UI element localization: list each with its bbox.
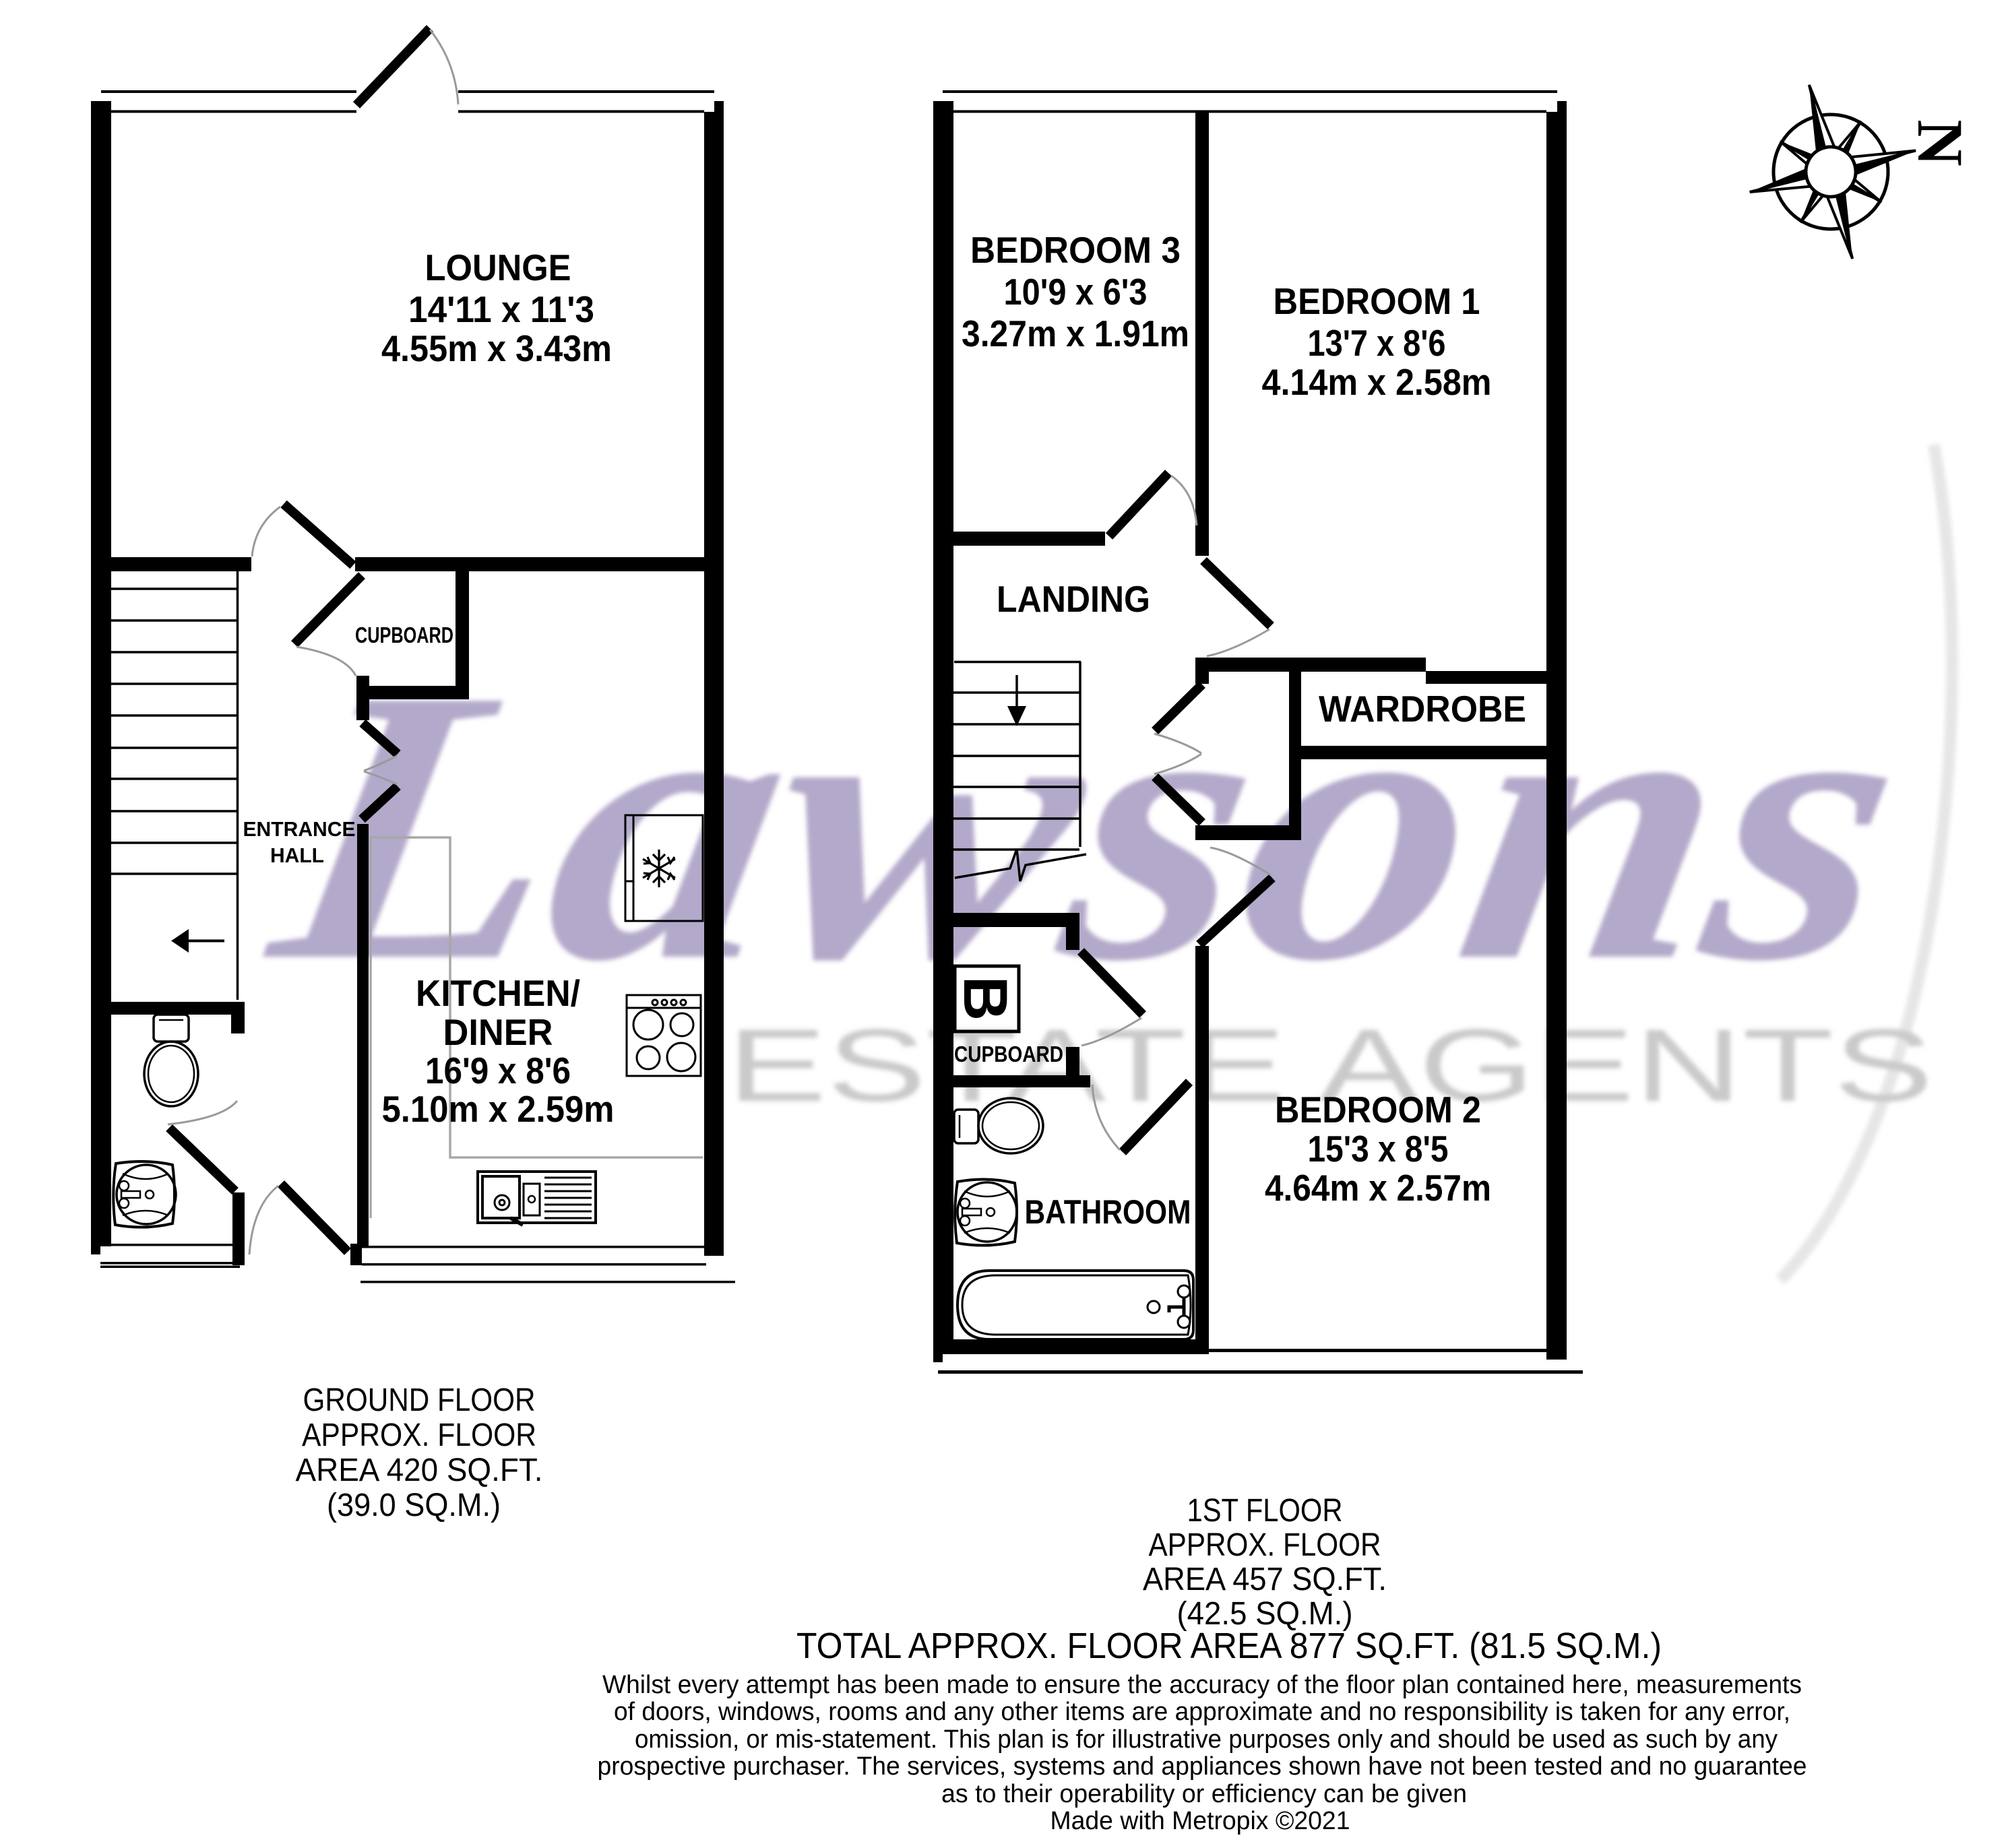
svg-text:4.55m x 3.43m: 4.55m x 3.43m bbox=[381, 327, 612, 369]
svg-text:BEDROOM 2: BEDROOM 2 bbox=[1275, 1089, 1481, 1130]
svg-text:5.10m x 2.59m: 5.10m x 2.59m bbox=[382, 1088, 615, 1130]
svg-text:N: N bbox=[1904, 119, 1976, 166]
svg-text:CUPBOARD: CUPBOARD bbox=[355, 623, 453, 647]
svg-text:omission, or mis-statement. Th: omission, or mis-statement. This plan is… bbox=[635, 1725, 1778, 1754]
svg-text:LOUNGE: LOUNGE bbox=[425, 247, 571, 288]
svg-text:AREA 457 SQ.FT.: AREA 457 SQ.FT. bbox=[1143, 1562, 1387, 1597]
svg-text:3.27m x 1.91m: 3.27m x 1.91m bbox=[962, 313, 1189, 354]
svg-text:(39.0 SQ.M.): (39.0 SQ.M.) bbox=[327, 1488, 501, 1523]
svg-text:Whilst every attempt has been: Whilst every attempt has been made to en… bbox=[602, 1671, 1802, 1699]
svg-text:CUPBOARD: CUPBOARD bbox=[954, 1042, 1063, 1066]
svg-text:10'9 x 6'3: 10'9 x 6'3 bbox=[1004, 271, 1148, 313]
svg-text:ENTRANCE: ENTRANCE bbox=[243, 817, 356, 841]
svg-text:APPROX. FLOOR: APPROX. FLOOR bbox=[1149, 1527, 1381, 1563]
svg-text:4.14m x 2.58m: 4.14m x 2.58m bbox=[1262, 361, 1492, 403]
svg-text:KITCHEN/: KITCHEN/ bbox=[416, 972, 580, 1014]
svg-text:Made with Metropix ©2021: Made with Metropix ©2021 bbox=[1050, 1807, 1350, 1835]
svg-text:1ST FLOOR: 1ST FLOOR bbox=[1187, 1493, 1343, 1529]
svg-text:DINER: DINER bbox=[443, 1011, 553, 1053]
svg-text:HALL: HALL bbox=[270, 843, 324, 867]
svg-text:14'11 x 11'3: 14'11 x 11'3 bbox=[408, 288, 594, 330]
svg-text:13'7 x 8'6: 13'7 x 8'6 bbox=[1308, 322, 1446, 364]
svg-text:GROUND FLOOR: GROUND FLOOR bbox=[303, 1382, 536, 1418]
svg-text:WARDROBE: WARDROBE bbox=[1319, 688, 1526, 730]
svg-text:prospective purchaser. The ser: prospective purchaser. The services, sys… bbox=[598, 1752, 1807, 1781]
svg-text:APPROX. FLOOR: APPROX. FLOOR bbox=[302, 1417, 536, 1453]
svg-text:BEDROOM 1: BEDROOM 1 bbox=[1274, 280, 1480, 322]
svg-text:16'9 x 8'6: 16'9 x 8'6 bbox=[425, 1050, 571, 1091]
svg-text:AREA 420 SQ.FT.: AREA 420 SQ.FT. bbox=[296, 1453, 543, 1488]
svg-text:4.64m x 2.57m: 4.64m x 2.57m bbox=[1265, 1167, 1491, 1209]
svg-text:BEDROOM 3: BEDROOM 3 bbox=[970, 229, 1181, 271]
svg-text:of doors, windows, rooms and a: of doors, windows, rooms and any other i… bbox=[614, 1698, 1790, 1726]
svg-text:LANDING: LANDING bbox=[997, 578, 1150, 620]
svg-text:B: B bbox=[951, 976, 1019, 1021]
svg-text:TOTAL APPROX. FLOOR AREA 877 S: TOTAL APPROX. FLOOR AREA 877 SQ.FT. (81.… bbox=[796, 1626, 1662, 1666]
svg-text:as to their operability or eff: as to their operability or efficiency ca… bbox=[941, 1780, 1467, 1808]
svg-text:BATHROOM: BATHROOM bbox=[1025, 1193, 1191, 1231]
svg-text:15'3 x 8'5: 15'3 x 8'5 bbox=[1308, 1128, 1449, 1170]
